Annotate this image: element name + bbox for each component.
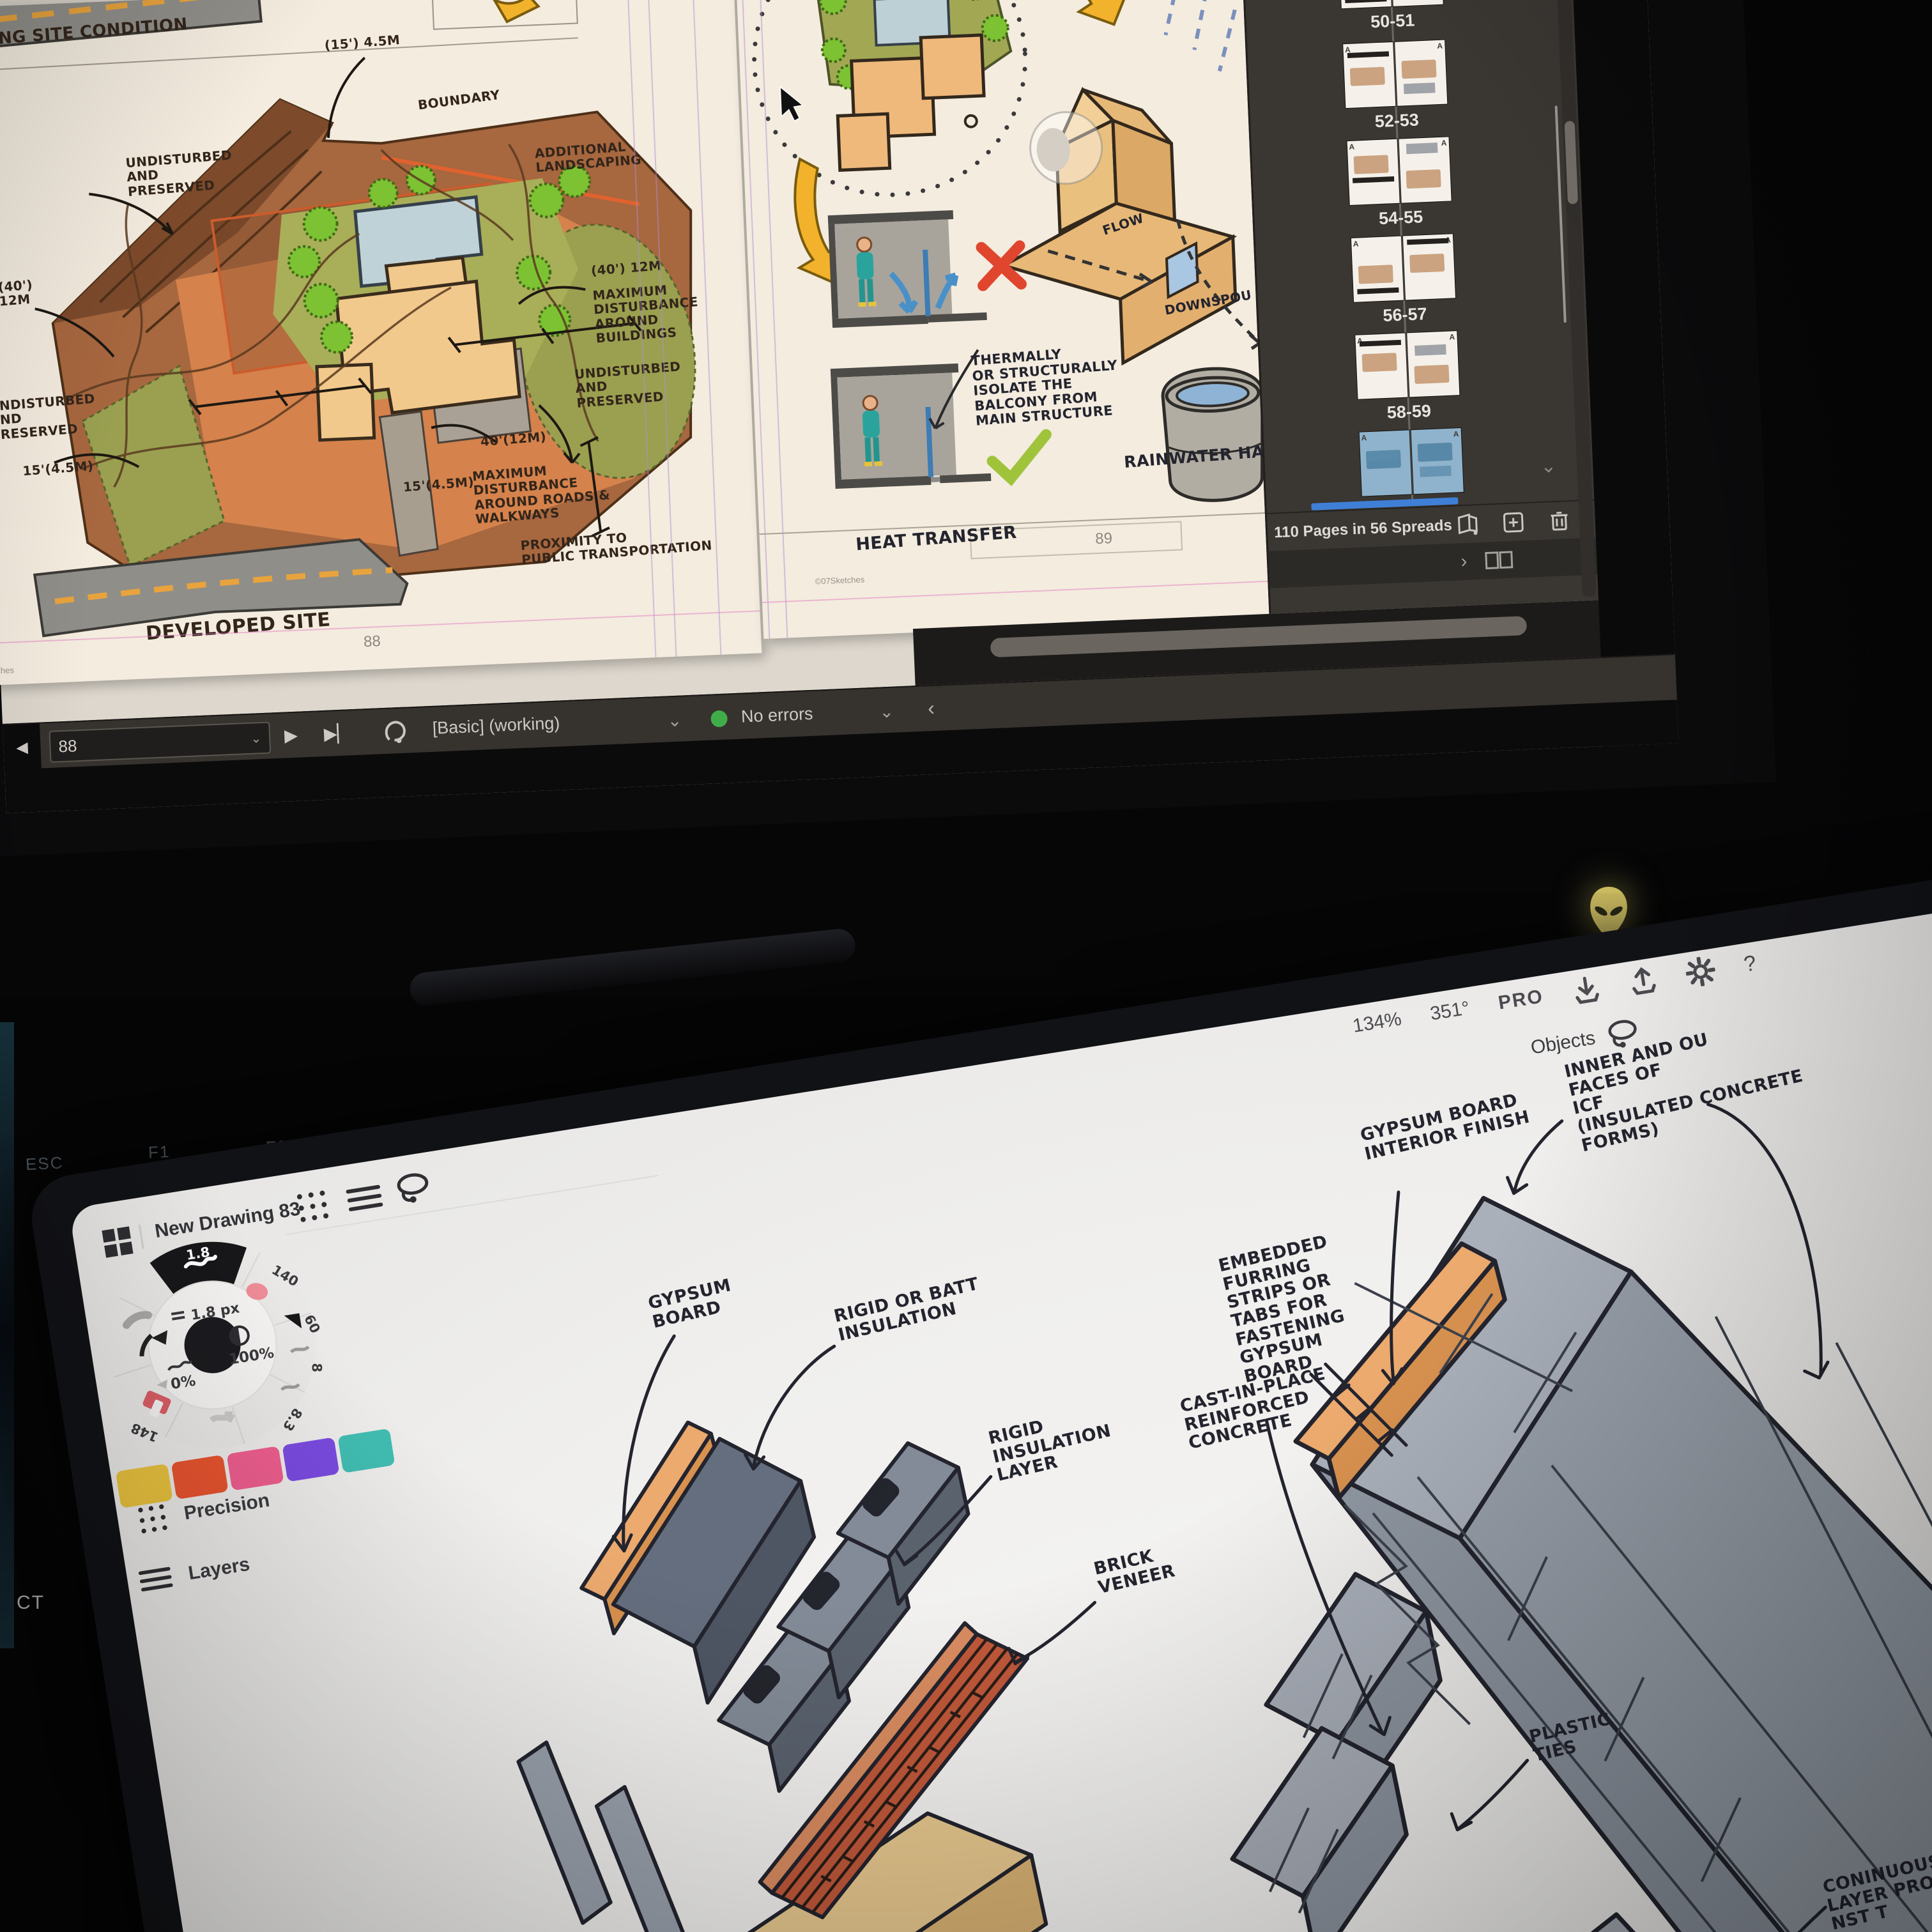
last-page-icon[interactable]: ▶▏: [323, 723, 351, 744]
next-page-icon[interactable]: ▶: [284, 726, 298, 746]
spread-52-53[interactable]: A A 52-53: [1288, 38, 1503, 135]
profile-chevron-icon[interactable]: ⌄: [667, 710, 682, 731]
section-heat-bad: [828, 208, 1023, 328]
collapse-icon[interactable]: ‹: [927, 696, 935, 720]
spread-50-51[interactable]: A A 50-51: [1284, 0, 1499, 36]
keyboard-backlight: [0, 1022, 14, 1648]
page-dropdown-chevron-icon: ⌄: [250, 730, 262, 747]
page-number-89: 89: [1095, 530, 1113, 548]
objects-lasso-icon: [1604, 1016, 1642, 1052]
page-back-icon[interactable]: ◀: [3, 724, 42, 771]
spread-view-icon[interactable]: [1485, 550, 1514, 571]
spread-58-59[interactable]: A A 58-59: [1300, 329, 1515, 427]
label-undisturbed-w: UNDISTURBED AND PRESERVED: [0, 392, 98, 443]
page-number-field[interactable]: 88⌄: [49, 721, 271, 762]
rotation-angle[interactable]: 351°: [1429, 997, 1471, 1025]
new-page-icon[interactable]: [1501, 510, 1526, 535]
preflight-profile[interactable]: [Basic] (working): [432, 713, 560, 738]
settings-gear-icon[interactable]: [1683, 955, 1717, 989]
panel-next-icon[interactable]: ›: [1460, 551, 1468, 572]
menu-icon[interactable]: [344, 1181, 384, 1215]
panel-scroll-chevron-icon[interactable]: ⌄: [1540, 455, 1557, 478]
monitor: EXISTING SITE CONDITION (15') 4.5M BOUND…: [0, 0, 1932, 997]
spread-60-61-current[interactable]: A A: [1305, 425, 1518, 498]
label-undisturbed-e: UNDISTURBED AND PRESERVED: [574, 359, 683, 410]
key-esc[interactable]: ESC: [25, 1153, 64, 1174]
label-dim-40-left: (40') 12M: [0, 278, 34, 309]
page-number-88: 88: [363, 632, 381, 651]
pages-count: 110 Pages in 56 Spreads: [1274, 517, 1453, 542]
green-status-dot: [710, 710, 728, 727]
key-fragment: CT: [17, 1592, 45, 1614]
errors-chevron-icon[interactable]: ⌄: [879, 702, 894, 723]
indesign-window: EXISTING SITE CONDITION (15') 4.5M BOUND…: [0, 0, 1776, 857]
label-thermal: THERMALLY OR STRUCTURALLY ISOLATE THE BA…: [970, 343, 1121, 429]
diagram-art: [736, 0, 1294, 639]
rain-barrel: [1161, 367, 1266, 502]
preflight-icon[interactable]: [381, 717, 410, 746]
precision-dots-icon: [135, 1501, 170, 1537]
spread-56-57[interactable]: A A 56-57: [1296, 232, 1511, 330]
label-undisturbed-nw: UNDISTURBED AND PRESERVED: [125, 148, 234, 199]
lasso-icon[interactable]: [393, 1169, 433, 1207]
precision-grid-icon[interactable]: [294, 1187, 332, 1225]
indesign-document-area: EXISTING SITE CONDITION (15') 4.5M BOUND…: [0, 0, 1679, 813]
site-plan-art: [0, 0, 762, 687]
indesign-page-89: FLOW DOWNSPOU THERMALLY OR STRUCTURALLY …: [736, 0, 1294, 639]
no-errors-status[interactable]: No errors: [710, 704, 813, 728]
indesign-page-88: EXISTING SITE CONDITION (15') 4.5M BOUND…: [0, 0, 762, 687]
layers-icon: [137, 1563, 174, 1596]
pro-badge[interactable]: PRO: [1497, 986, 1545, 1015]
pages-panel: A A 50-51 A A 52-53 A: [1241, 0, 1600, 614]
label-max-buildings: MAXIMUM DISTURBANCE AROUND BUILDINGS: [592, 280, 701, 346]
tool-wheel[interactable]: 1.8 140 60 8 8.3 148 1.8 px 100% 0%: [88, 1221, 337, 1469]
wheel-slot-c: 8: [309, 1363, 325, 1372]
delete-page-icon[interactable]: [1547, 508, 1572, 533]
photo-scene: EXISTING SITE CONDITION (15') 4.5M BOUND…: [0, 0, 1932, 1932]
edit-page-icon[interactable]: [1455, 512, 1480, 537]
label-max-roads: MAXIMUM DISTURBANCE AROUND ROADS & WALKW…: [471, 459, 611, 526]
import-icon[interactable]: [1570, 974, 1602, 1006]
zoom-level[interactable]: 134%: [1351, 1008, 1403, 1038]
spread-54-55[interactable]: A A 54-55: [1292, 135, 1507, 233]
export-icon[interactable]: [1627, 965, 1659, 997]
mouse-cursor: [780, 86, 803, 121]
